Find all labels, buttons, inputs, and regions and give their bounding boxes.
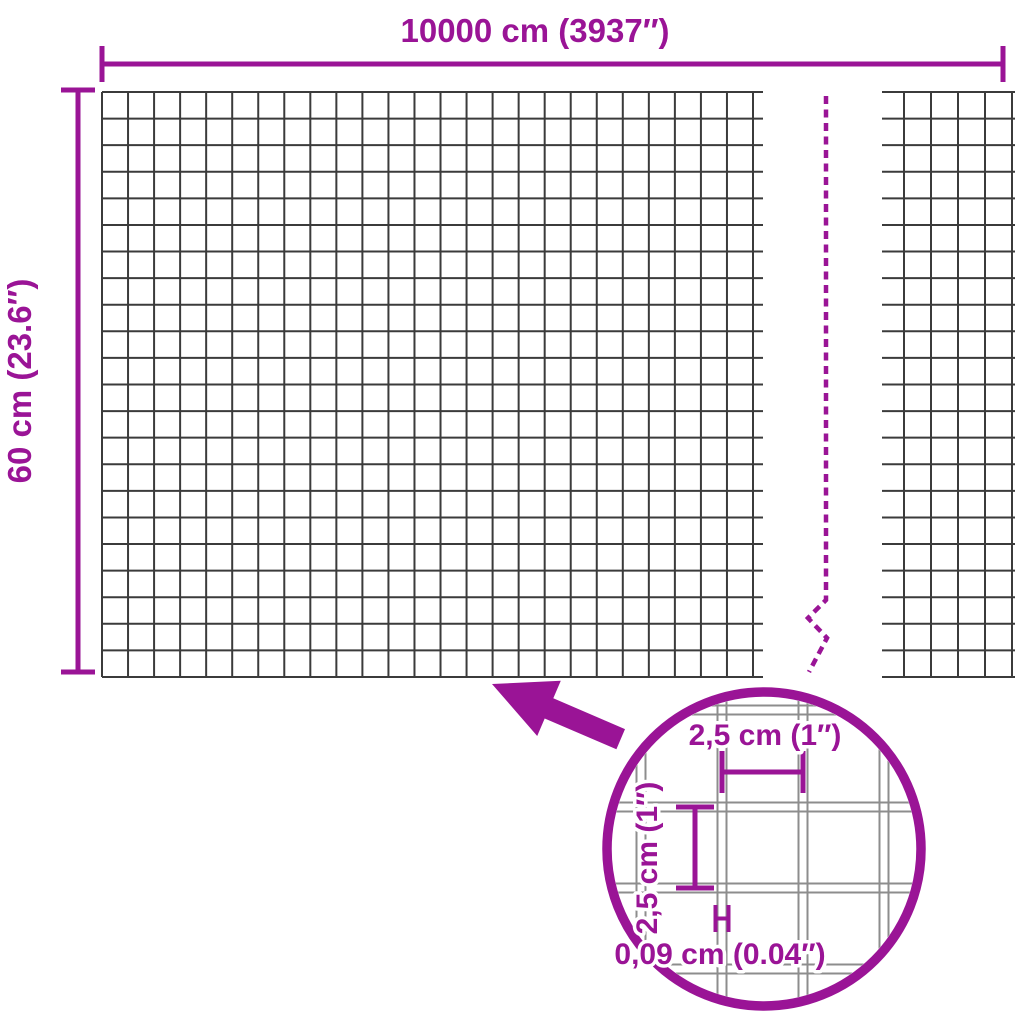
wire-thickness-label: 0,09 cm (0.04″) xyxy=(614,938,825,971)
diagram-canvas: 10000 cm (3937″) 60 cm (23.6″) 2,5 cm (1… xyxy=(0,0,1024,1024)
product-dimension-diagram: 10000 cm (3937″) 60 cm (23.6″) 2,5 cm (1… xyxy=(0,0,1024,1024)
mesh-break-dashed-line xyxy=(808,96,827,672)
width-dimension-label: 10000 cm (3937″) xyxy=(401,12,670,49)
width-dimension-line xyxy=(102,46,1003,82)
mesh-grid-continued xyxy=(882,92,1015,677)
mesh-grid-main xyxy=(102,92,763,677)
mesh-width-dimension-label: 2,5 cm (1″) xyxy=(689,719,842,752)
mesh-height-dimension-label: 2,5 cm (1″) xyxy=(631,782,664,935)
height-dimension-line xyxy=(61,90,95,672)
height-dimension-label: 60 cm (23.6″) xyxy=(1,279,38,484)
zoom-arrow-icon xyxy=(492,681,625,750)
